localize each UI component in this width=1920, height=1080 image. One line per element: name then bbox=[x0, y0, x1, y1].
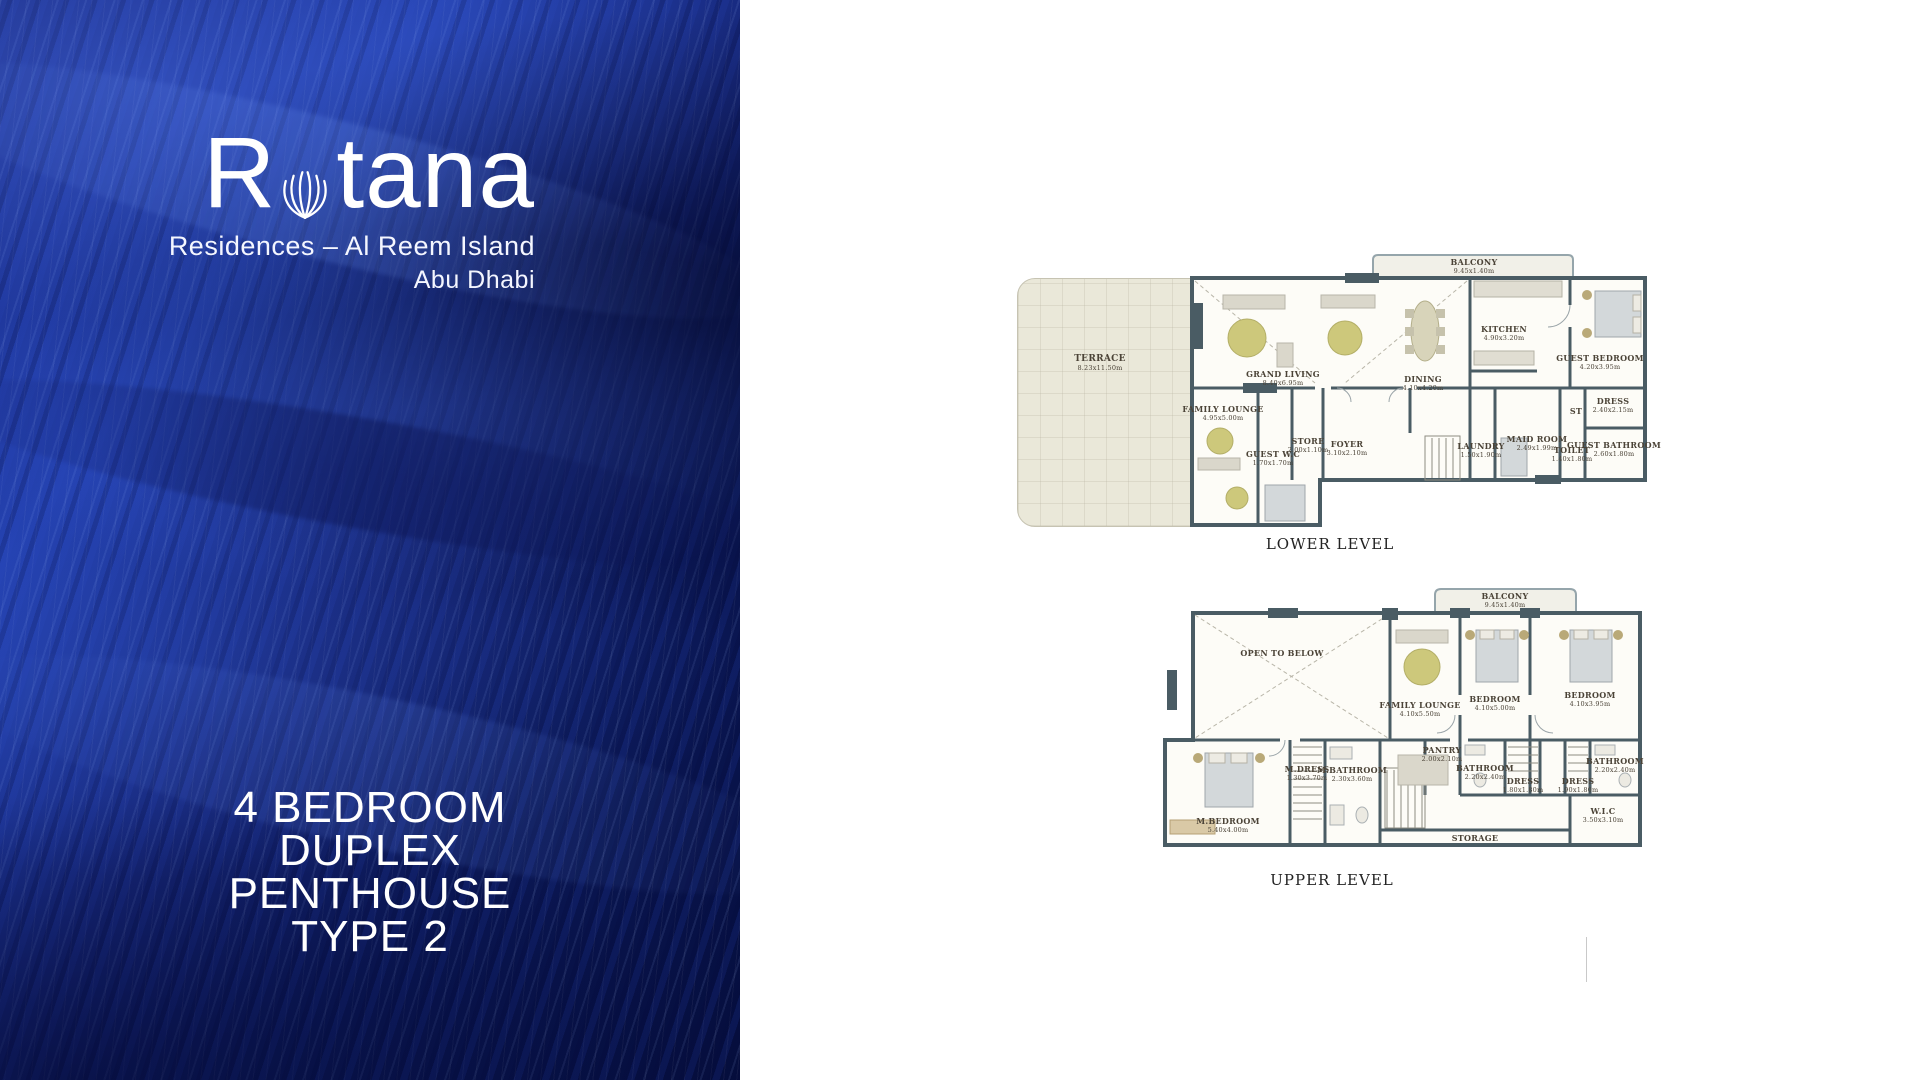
lower-level-title: LOWER LEVEL bbox=[1266, 535, 1394, 553]
room-label-foyer: FOYER3.10x2.10m bbox=[1327, 439, 1368, 457]
floorplan-upper-drawing bbox=[1150, 575, 1650, 897]
room-label-dining: DINING4.10x4.20m bbox=[1403, 374, 1444, 392]
room-label-family-lounge: FAMILY LOUNGE4.10x5.50m bbox=[1379, 700, 1460, 718]
floorplan-lower-level: TERRACE8.23x11.50m BALCONY9.45x1.40m GRA… bbox=[1015, 243, 1647, 553]
unit-title: 4 BEDROOM DUPLEX PENTHOUSE TYPE 2 bbox=[0, 786, 740, 958]
divider bbox=[1586, 937, 1587, 982]
room-label-balcony: BALCONY9.45x1.40m bbox=[1450, 257, 1497, 275]
room-label-storage: STORAGE bbox=[1452, 833, 1499, 843]
room-label-bedroom-2: BEDROOM4.10x5.00m bbox=[1469, 694, 1520, 712]
logo-letters-tana: tana bbox=[336, 126, 535, 221]
brand-subtitle: Residences – Al Reem Island bbox=[169, 231, 535, 262]
room-label-guest-bedroom: GUEST BEDROOM4.20x3.95m bbox=[1556, 353, 1644, 371]
room-label-balcony: BALCONY9.45x1.40m bbox=[1481, 591, 1528, 609]
floorplan-upper-level: BALCONY9.45x1.40m OPEN TO BELOW FAMILY L… bbox=[1150, 575, 1650, 897]
brand-city: Abu Dhabi bbox=[169, 266, 535, 295]
room-label-m-bathroom: M.BATHROOM2.30x3.60m bbox=[1317, 765, 1387, 783]
unit-title-line: 4 BEDROOM bbox=[0, 786, 740, 829]
left-brand-panel: R tana Residences – Al Reem Island Abu D… bbox=[0, 0, 740, 1080]
brand-block: R tana Residences – Al Reem Island Abu D… bbox=[169, 126, 535, 295]
room-label-m-bedroom: M.BEDROOM5.40x4.00m bbox=[1196, 816, 1260, 834]
room-label-wic: W.I.C3.50x3.10m bbox=[1583, 806, 1624, 824]
room-label-terrace: TERRACE8.23x11.50m bbox=[1074, 354, 1126, 372]
logo-letter-r: R bbox=[203, 126, 276, 221]
texture-streak bbox=[0, 343, 740, 608]
unit-title-line: DUPLEX bbox=[0, 829, 740, 872]
room-label-bedroom-3: BEDROOM4.10x3.95m bbox=[1564, 690, 1615, 708]
room-label-family-lounge: FAMILY LOUNGE4.95x5.00m bbox=[1182, 404, 1263, 422]
room-label-guest-bathroom: GUEST BATHROOM2.60x1.80m bbox=[1567, 440, 1661, 458]
room-label-dress-3: DRESS1.90x1.80m bbox=[1558, 776, 1599, 794]
rotana-logo: R tana bbox=[169, 126, 535, 221]
room-label-dress-2: DRESS1.80x1.80m bbox=[1503, 776, 1544, 794]
brochure-page: R tana Residences – Al Reem Island Abu D… bbox=[0, 0, 1920, 1080]
room-label-store: STORE2.00x1.10m bbox=[1288, 436, 1329, 454]
upper-level-title: UPPER LEVEL bbox=[1270, 871, 1394, 889]
unit-title-line: TYPE 2 bbox=[0, 915, 740, 958]
room-label-bathroom-3: BATHROOM2.20x2.40m bbox=[1586, 756, 1644, 774]
room-label-pantry: PANTRY2.00x2.10m bbox=[1422, 745, 1463, 763]
rotana-fan-icon bbox=[277, 167, 333, 223]
unit-title-line: PENTHOUSE bbox=[0, 872, 740, 915]
room-label-laundry: LAUNDRY1.50x1.90m bbox=[1457, 441, 1504, 459]
room-label-st: ST bbox=[1570, 406, 1582, 416]
floorplan-lower-drawing bbox=[1015, 243, 1647, 553]
room-label-kitchen: KITCHEN4.90x3.20m bbox=[1481, 324, 1527, 342]
room-label-open-to-below: OPEN TO BELOW bbox=[1240, 648, 1323, 658]
room-label-grand-living: GRAND LIVING8.40x6.95m bbox=[1246, 369, 1320, 387]
room-label-dress: DRESS2.40x2.15m bbox=[1593, 396, 1634, 414]
